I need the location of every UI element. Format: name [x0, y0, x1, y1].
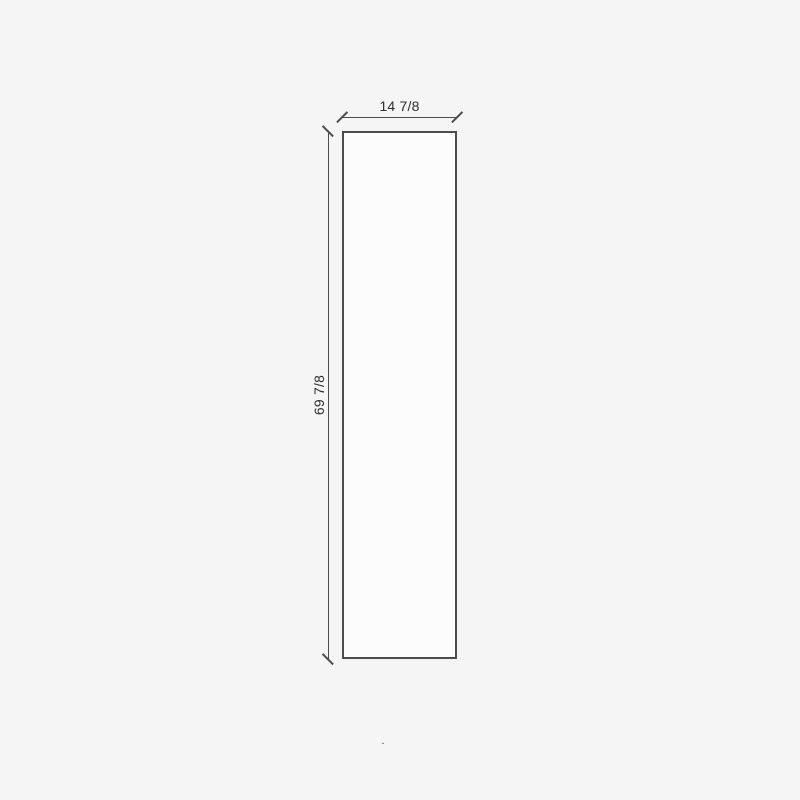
height-dimension-label: 69 7/8: [311, 355, 327, 435]
drawing-canvas: 14 7/8 69 7/8 .: [0, 0, 800, 800]
width-dimension-label: 14 7/8: [342, 98, 457, 114]
width-dimension-line: [342, 117, 457, 118]
stray-dot: .: [378, 734, 388, 748]
height-dimension-line: [328, 131, 329, 659]
panel-outline: [342, 131, 457, 659]
